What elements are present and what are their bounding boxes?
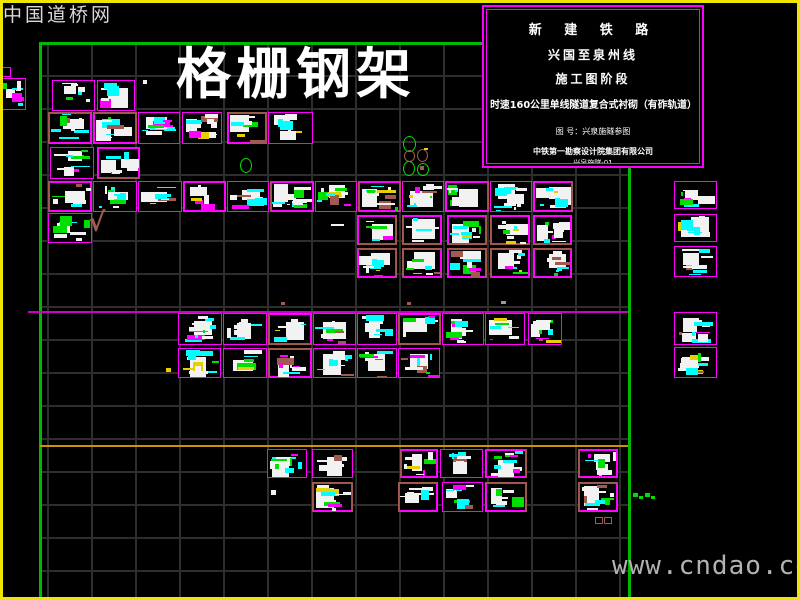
detail-cell xyxy=(674,214,717,242)
cell-linework xyxy=(689,274,701,275)
cell-linework xyxy=(451,251,463,257)
cell-linework xyxy=(680,199,693,205)
cell-linework xyxy=(681,365,699,368)
cell-linework xyxy=(505,266,513,269)
cell-linework xyxy=(423,203,432,206)
cell-linework xyxy=(453,226,468,229)
cell-linework xyxy=(597,470,612,475)
cell-linework xyxy=(96,120,112,122)
cell-linework xyxy=(430,196,432,198)
frame-line-left xyxy=(39,42,42,598)
detail-cell xyxy=(268,348,312,378)
cell-linework xyxy=(141,198,146,199)
detail-cell xyxy=(398,348,440,378)
detail-cell xyxy=(674,312,717,345)
detail-cell xyxy=(223,313,267,345)
cell-linework xyxy=(238,367,254,370)
cell-linework xyxy=(495,323,509,325)
detail-cell xyxy=(398,313,441,345)
cell-linework xyxy=(371,186,384,187)
cell-linework xyxy=(157,198,169,199)
cell-linework xyxy=(64,167,74,176)
detail-cell xyxy=(313,348,356,378)
cell-linework xyxy=(699,216,705,219)
detail-cell xyxy=(442,482,483,512)
cell-linework xyxy=(201,204,215,211)
cell-linework xyxy=(694,322,713,326)
detail-cell xyxy=(183,181,226,212)
cell-linework xyxy=(148,125,164,128)
detail-cell xyxy=(485,449,527,478)
cell-linework xyxy=(452,453,454,459)
cell-linework xyxy=(503,490,514,493)
detail-cell xyxy=(490,215,530,245)
cell-linework xyxy=(279,363,283,368)
cell-linework xyxy=(395,207,398,211)
cell-linework xyxy=(587,508,598,510)
cell-linework xyxy=(3,83,7,89)
cell-linework xyxy=(509,336,519,339)
cell-linework xyxy=(539,339,543,341)
cell-linework xyxy=(595,500,605,504)
cell-linework xyxy=(552,241,566,242)
cell-linework xyxy=(376,270,380,271)
cell-linework xyxy=(301,324,306,325)
cell-linework xyxy=(377,203,395,205)
cell-linework xyxy=(81,150,88,152)
cell-linework xyxy=(491,473,505,476)
detail-cell xyxy=(442,313,484,345)
cell-linework xyxy=(59,137,79,139)
cell-linework xyxy=(15,94,21,98)
cell-linework xyxy=(452,197,459,206)
cell-linework xyxy=(421,490,429,500)
cell-linework xyxy=(379,234,392,235)
cell-linework xyxy=(698,334,708,342)
title-line-ref: 兴泉施隧-01 xyxy=(573,158,612,164)
detail-cell xyxy=(138,112,180,144)
cell-linework xyxy=(554,191,558,193)
cell-linework xyxy=(459,189,478,207)
cell-linework xyxy=(425,266,432,270)
cell-linework xyxy=(465,505,473,509)
cell-linework xyxy=(545,222,549,225)
cell-linework xyxy=(186,120,202,124)
cell-linework xyxy=(420,329,424,332)
cell-linework xyxy=(507,236,514,239)
cell-linework xyxy=(234,330,251,335)
detail-cell xyxy=(50,147,94,179)
cell-linework xyxy=(410,355,425,358)
cell-linework xyxy=(413,218,418,221)
cell-linework xyxy=(458,235,462,239)
cell-linework xyxy=(109,192,120,194)
watermark-site-name: 中国道桥网 xyxy=(3,0,113,27)
cell-linework xyxy=(332,464,344,467)
cell-linework xyxy=(53,199,58,204)
cell-linework xyxy=(546,340,561,343)
cell-linework xyxy=(412,240,424,242)
cell-linework xyxy=(553,251,562,254)
cell-linework xyxy=(455,321,468,327)
cell-linework xyxy=(407,205,417,207)
detail-cell xyxy=(445,181,489,212)
cell-linework xyxy=(503,460,517,463)
cell-linework xyxy=(359,354,374,357)
drawing-mark xyxy=(417,149,428,162)
cell-linework xyxy=(333,351,345,360)
cell-linework xyxy=(106,156,121,159)
cell-linework xyxy=(407,261,419,268)
drawing-mark xyxy=(281,302,285,305)
cell-linework xyxy=(205,114,218,118)
cell-linework xyxy=(512,497,524,507)
cell-linework xyxy=(253,193,259,196)
cell-linework xyxy=(74,130,89,133)
cell-linework xyxy=(374,334,382,335)
cell-linework xyxy=(376,336,378,337)
cell-linework xyxy=(17,81,21,90)
cell-linework xyxy=(66,155,73,157)
cell-linework xyxy=(71,204,82,207)
detail-cell xyxy=(358,181,401,212)
detail-cell xyxy=(315,181,357,212)
cell-linework xyxy=(142,130,148,131)
cell-linework xyxy=(692,265,707,269)
cell-linework xyxy=(319,465,330,471)
cell-linework xyxy=(471,272,480,277)
cell-linework xyxy=(374,354,384,355)
cell-linework xyxy=(236,195,251,197)
cell-linework xyxy=(472,228,476,232)
cell-linework xyxy=(204,195,209,204)
cell-linework xyxy=(113,206,119,208)
cell-linework xyxy=(593,491,606,493)
cell-linework xyxy=(195,335,198,338)
cell-linework xyxy=(695,332,710,333)
detail-cell xyxy=(97,147,140,179)
cell-linework xyxy=(71,122,75,131)
cell-linework xyxy=(502,257,510,260)
cell-linework xyxy=(108,196,117,199)
cell-linework xyxy=(345,359,348,361)
cell-linework xyxy=(469,268,481,271)
cell-linework xyxy=(280,355,288,357)
drawing-mark xyxy=(501,301,506,304)
detail-cell xyxy=(48,213,92,243)
cell-linework xyxy=(86,99,90,102)
cell-linework xyxy=(610,493,614,497)
cell-linework xyxy=(317,460,328,462)
cell-linework xyxy=(514,207,516,210)
cell-linework xyxy=(335,188,347,191)
cell-linework xyxy=(321,334,335,338)
detail-cell xyxy=(490,248,530,278)
cell-linework xyxy=(554,273,558,276)
cell-linework xyxy=(62,114,71,115)
cell-linework xyxy=(327,339,333,341)
drawing-mark xyxy=(424,148,428,150)
cell-linework xyxy=(372,239,380,241)
title-line-route: 兴国至泉州线 xyxy=(548,46,638,63)
cell-linework xyxy=(536,320,551,322)
cell-linework xyxy=(317,369,325,370)
cell-linework xyxy=(502,221,506,224)
cell-linework xyxy=(506,241,516,244)
cell-linework xyxy=(108,117,111,119)
cell-linework xyxy=(375,359,383,360)
cell-linework xyxy=(520,242,526,244)
cell-linework xyxy=(210,325,216,329)
cell-linework xyxy=(51,129,61,132)
title-block-inner: 新 建 铁 路 兴国至泉州线 施工图阶段 时速160公里单线隧道复合式衬砌（有砟… xyxy=(486,9,700,164)
cell-linework xyxy=(541,231,553,233)
cell-linework xyxy=(127,162,138,171)
cell-linework xyxy=(167,127,175,129)
cell-linework xyxy=(150,203,156,204)
sheet-title: 格栅钢架 xyxy=(176,44,416,105)
cell-linework xyxy=(555,262,570,265)
cell-linework xyxy=(71,156,90,159)
detail-cell xyxy=(52,80,95,111)
cell-linework xyxy=(702,326,710,327)
cell-linework xyxy=(71,84,78,86)
detail-cell xyxy=(533,248,572,278)
cell-linework xyxy=(157,187,176,188)
detail-cell xyxy=(447,215,487,245)
cell-linework xyxy=(207,119,214,124)
cell-linework xyxy=(203,330,205,333)
cell-linework xyxy=(561,267,569,269)
cell-linework xyxy=(496,210,501,211)
cell-linework xyxy=(679,332,682,335)
cell-linework xyxy=(698,353,701,362)
cell-linework xyxy=(232,205,249,209)
detail-cell xyxy=(533,215,572,245)
cell-linework xyxy=(196,351,213,356)
cad-canvas: √ 格栅钢架 新 建 铁 路 兴国至泉州线 施工图阶段 时速160公里单线隧道复… xyxy=(0,0,800,600)
cell-linework xyxy=(466,330,473,332)
cell-linework xyxy=(456,461,464,463)
cell-linework xyxy=(335,331,344,333)
cell-linework xyxy=(86,188,91,191)
cell-linework xyxy=(374,275,383,276)
cell-linework xyxy=(52,196,65,197)
cell-linework xyxy=(53,226,67,233)
cell-linework xyxy=(54,234,67,238)
cell-linework xyxy=(366,315,384,321)
cell-linework xyxy=(416,474,424,475)
title-line-drawing-no: 图 号：兴泉施隧参图 xyxy=(556,126,631,137)
cell-linework xyxy=(366,221,374,222)
drawing-mark xyxy=(651,496,655,499)
cell-linework xyxy=(412,259,424,262)
detail-cell xyxy=(357,248,397,278)
cell-linework xyxy=(371,226,387,229)
cell-linework xyxy=(401,358,408,360)
detail-cell xyxy=(485,482,527,512)
cell-linework xyxy=(60,116,67,126)
cell-linework xyxy=(323,368,328,369)
cell-linework xyxy=(425,317,435,324)
cell-linework xyxy=(683,190,695,191)
cell-linework xyxy=(237,134,245,137)
drawing-mark xyxy=(633,493,638,497)
cell-linework xyxy=(498,225,512,229)
cell-linework xyxy=(420,358,423,360)
cell-linework xyxy=(415,187,420,193)
cell-linework xyxy=(76,184,82,187)
cell-linework xyxy=(293,199,303,205)
cell-linework xyxy=(64,86,76,94)
cell-linework xyxy=(76,238,82,241)
cell-linework xyxy=(376,329,393,332)
detail-cell xyxy=(93,112,137,144)
drawing-mark xyxy=(645,493,650,497)
cell-linework xyxy=(517,199,521,207)
cell-linework xyxy=(598,459,605,468)
cell-linework xyxy=(513,272,528,274)
cell-linework xyxy=(189,331,208,332)
cell-linework xyxy=(202,336,213,339)
cell-linework xyxy=(554,229,563,238)
cell-linework xyxy=(73,200,86,204)
cell-linework xyxy=(198,316,208,319)
cell-linework xyxy=(230,195,237,200)
cell-linework xyxy=(509,250,522,253)
cell-linework xyxy=(413,273,422,274)
detail-cell xyxy=(578,482,618,512)
cell-linework xyxy=(101,98,109,101)
detail-cell xyxy=(178,348,221,378)
cell-linework xyxy=(494,465,501,469)
cell-linework xyxy=(100,137,112,138)
cell-linework xyxy=(681,192,683,196)
cell-linework xyxy=(280,131,296,140)
cell-linework xyxy=(422,191,437,193)
cell-linework xyxy=(293,366,300,367)
cell-linework xyxy=(423,186,429,190)
cell-linework xyxy=(682,249,699,251)
drawing-mark xyxy=(407,302,411,305)
cell-linework xyxy=(291,454,298,456)
cell-linework xyxy=(467,262,472,268)
drawing-mark xyxy=(271,490,276,495)
detail-cell xyxy=(490,181,532,212)
cell-linework xyxy=(192,323,199,325)
detail-cell xyxy=(357,215,397,245)
detail-cell xyxy=(178,313,222,345)
cell-linework xyxy=(552,257,561,260)
cell-linework xyxy=(359,256,372,265)
cell-linework xyxy=(107,125,124,129)
cell-linework xyxy=(273,204,282,207)
cell-linework xyxy=(516,188,527,191)
cell-linework xyxy=(337,365,345,366)
cell-linework xyxy=(405,367,423,370)
cell-linework xyxy=(332,321,335,324)
cell-linework xyxy=(230,337,245,340)
cell-linework xyxy=(426,273,433,275)
drawing-mark xyxy=(240,158,252,173)
cell-linework xyxy=(473,236,480,238)
cell-linework xyxy=(285,468,294,473)
cell-linework xyxy=(66,97,73,100)
cell-linework xyxy=(555,198,568,207)
cell-linework xyxy=(687,227,700,231)
cell-linework xyxy=(699,249,710,253)
cell-linework xyxy=(112,171,120,174)
reference-line xyxy=(40,445,628,447)
cell-linework xyxy=(429,316,435,318)
cell-linework xyxy=(326,193,335,196)
cell-linework xyxy=(556,270,559,272)
cell-linework xyxy=(231,122,244,126)
cell-linework xyxy=(191,198,202,201)
detail-cell xyxy=(48,181,92,212)
cell-linework xyxy=(288,333,290,335)
cell-linework xyxy=(461,235,471,238)
cell-linework xyxy=(332,508,336,511)
cell-linework xyxy=(407,492,414,500)
cell-linework xyxy=(18,103,23,106)
cell-linework xyxy=(582,487,589,491)
cell-linework xyxy=(403,329,406,337)
cell-linework xyxy=(212,361,219,363)
cell-linework xyxy=(124,152,129,159)
cell-linework xyxy=(494,206,512,208)
detail-cell xyxy=(402,215,442,245)
detail-cell xyxy=(313,313,356,345)
cell-linework xyxy=(513,229,519,231)
cell-linework xyxy=(227,328,231,338)
cell-linework xyxy=(450,263,460,270)
cell-linework xyxy=(455,190,458,192)
detail-cell xyxy=(182,112,222,144)
cell-linework xyxy=(693,270,707,273)
cell-linework xyxy=(463,191,468,194)
cell-linework xyxy=(459,341,466,343)
drawing-mark: √ xyxy=(88,210,105,236)
cell-linework xyxy=(366,266,369,273)
drawing-mark xyxy=(420,166,424,170)
cell-linework xyxy=(599,475,602,476)
cell-linework xyxy=(460,251,481,259)
cell-linework xyxy=(234,325,241,329)
cell-linework xyxy=(275,464,279,469)
cell-linework xyxy=(518,253,525,256)
detail-cell xyxy=(674,246,717,277)
drawing-mark xyxy=(403,161,415,176)
cell-linework xyxy=(449,190,451,193)
cell-linework xyxy=(341,374,354,376)
detail-cell xyxy=(0,78,26,110)
cell-linework xyxy=(163,120,172,122)
cell-linework xyxy=(428,186,442,189)
cell-linework xyxy=(341,192,348,195)
detail-cell xyxy=(268,112,313,144)
cell-linework xyxy=(428,375,439,377)
cell-linework xyxy=(508,327,519,328)
detail-cell xyxy=(402,181,444,212)
cell-linework xyxy=(434,272,441,274)
detail-cell xyxy=(267,449,307,478)
title-line-railway: 新 建 铁 路 xyxy=(529,19,658,38)
drawing-mark xyxy=(595,517,603,524)
cell-linework xyxy=(416,229,432,231)
cell-linework xyxy=(377,376,387,377)
cell-linework xyxy=(287,204,290,205)
